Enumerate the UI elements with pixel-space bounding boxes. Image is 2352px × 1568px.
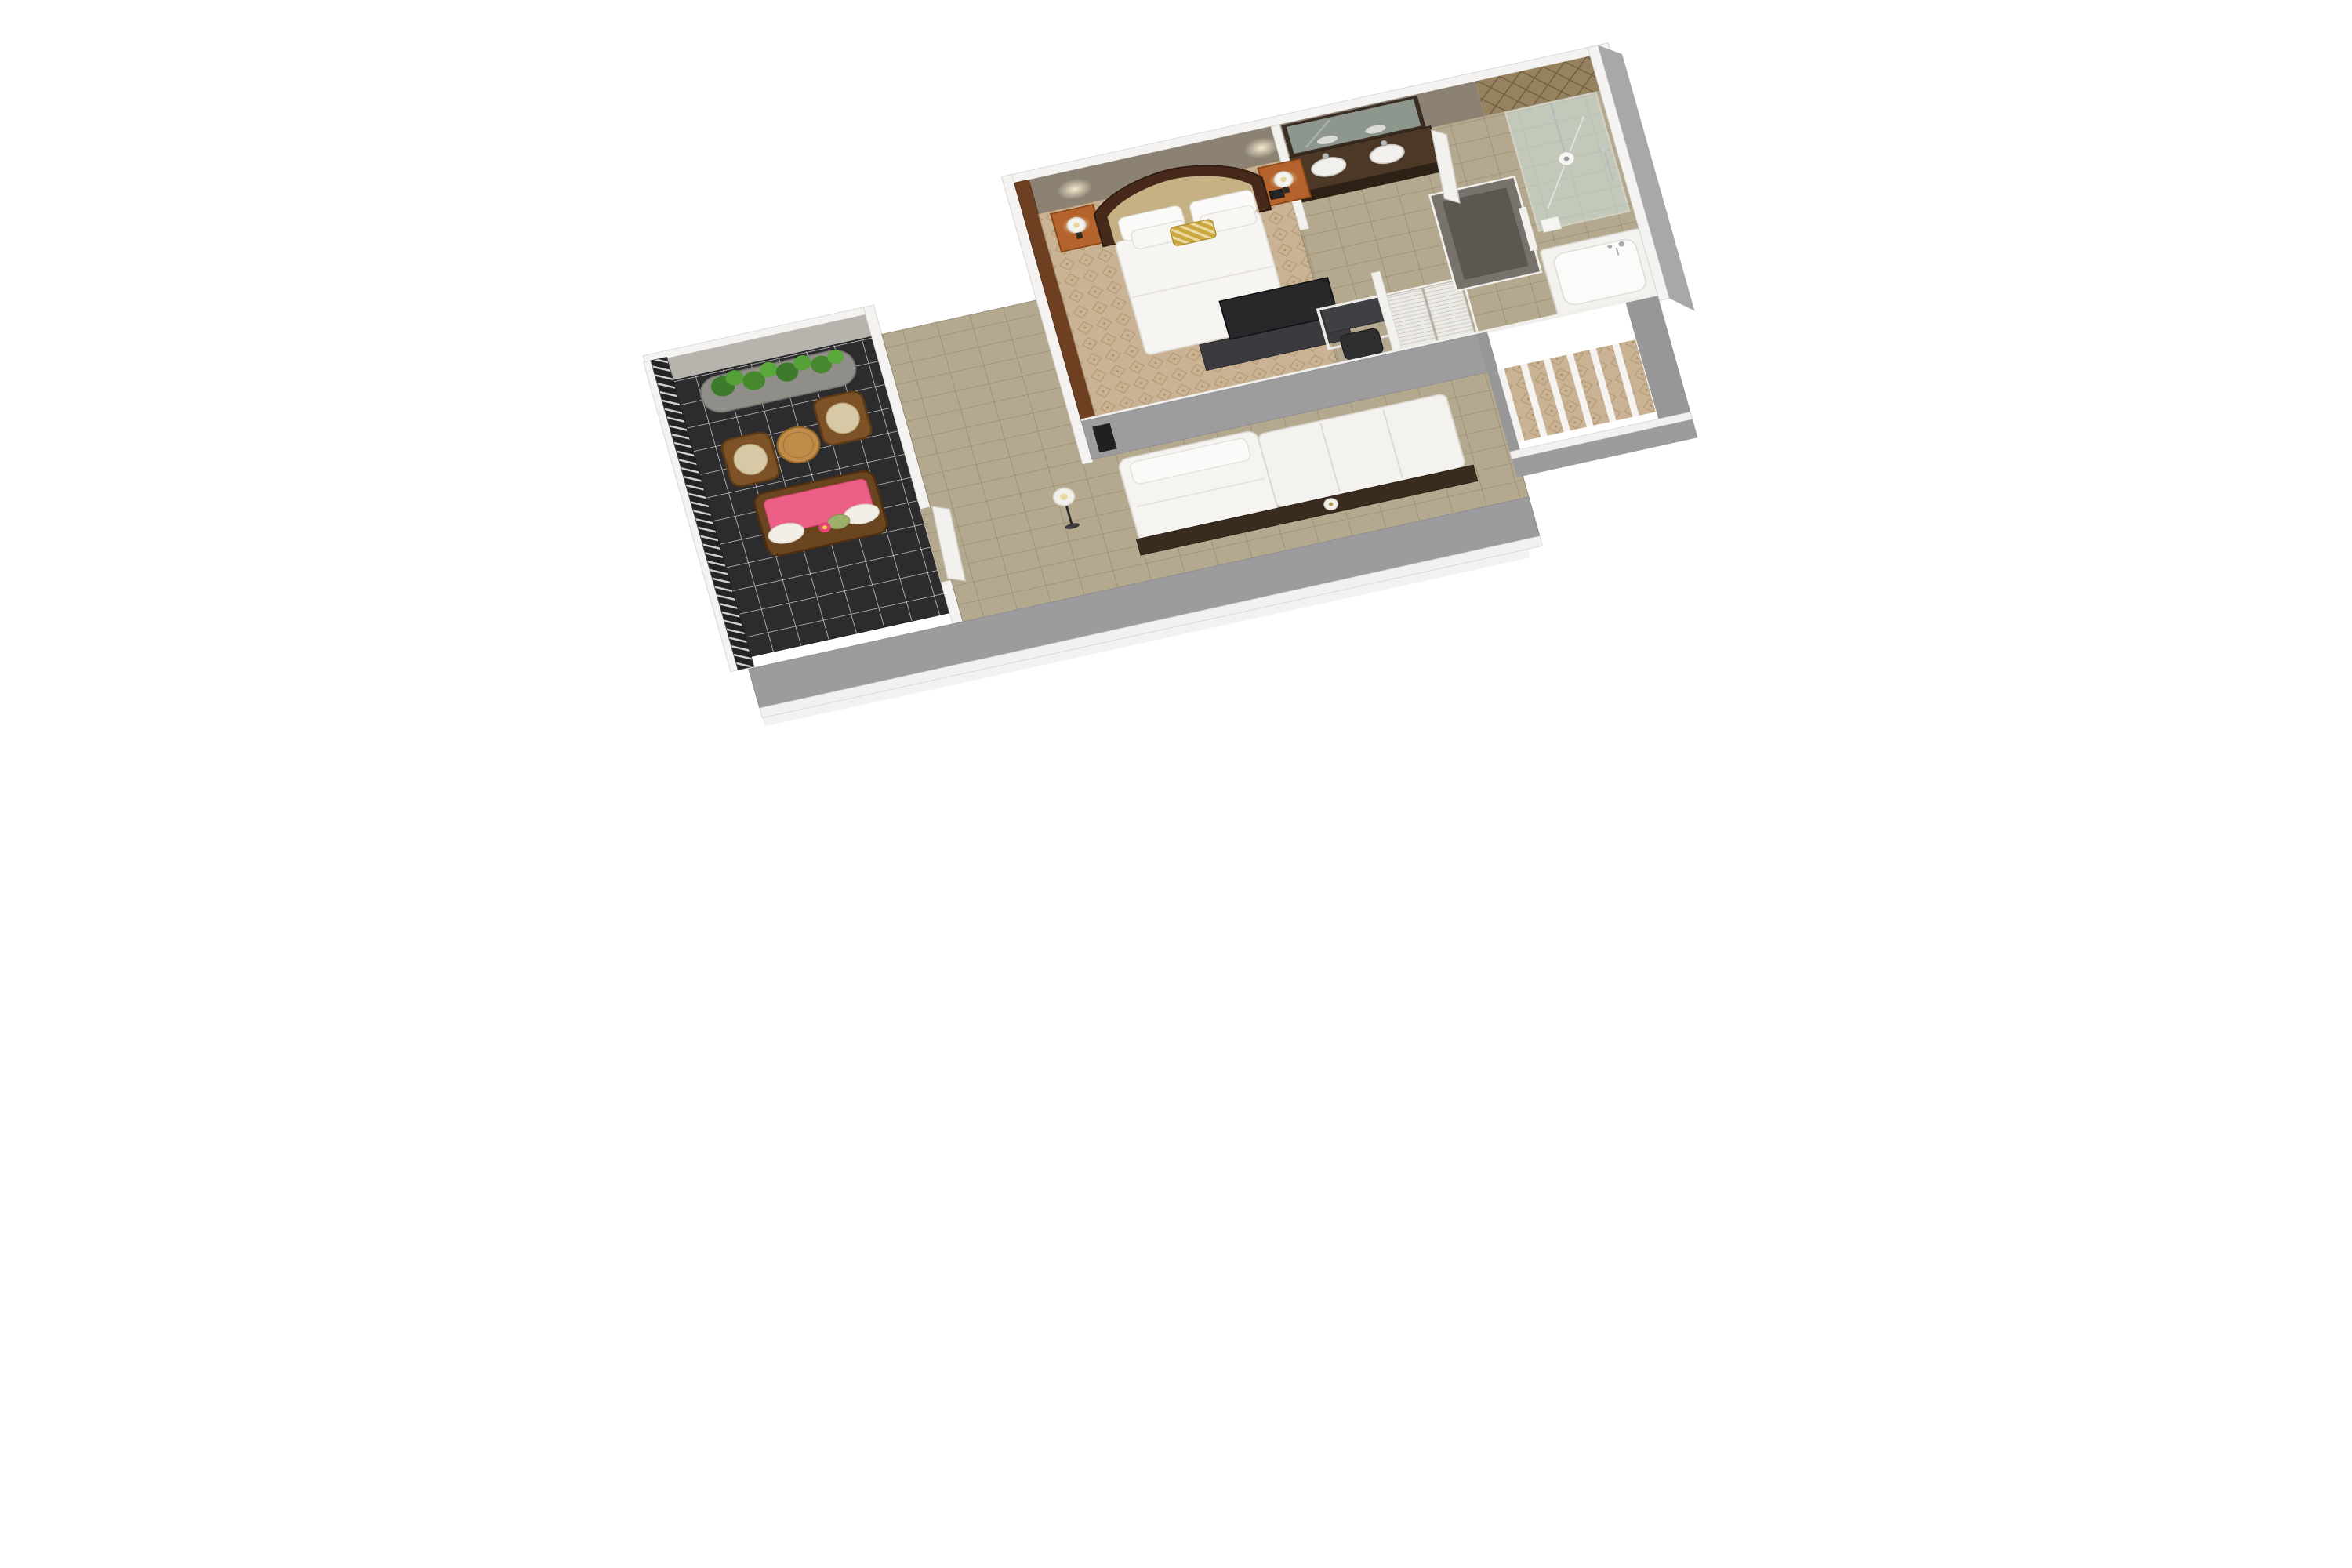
floor-plan-stage xyxy=(588,0,1764,784)
floor-plan-render xyxy=(588,0,1764,784)
floor-plan-group xyxy=(615,41,1751,731)
